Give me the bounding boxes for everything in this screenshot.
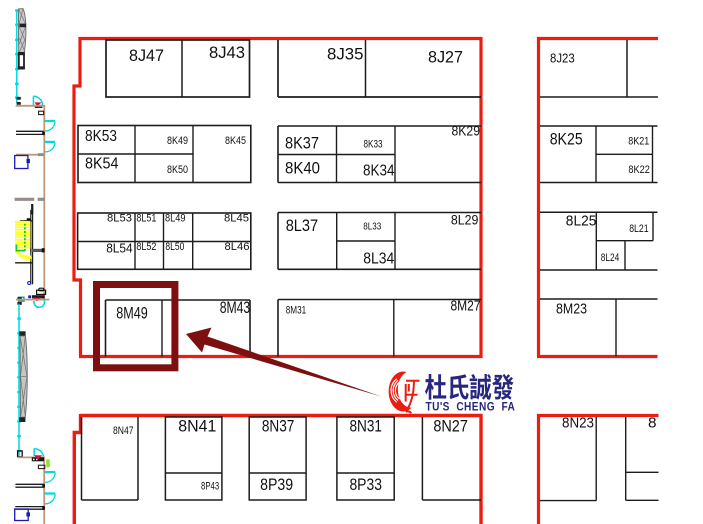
svg-text:8K50: 8K50 [167, 164, 188, 176]
svg-text:8P33: 8P33 [349, 476, 382, 494]
svg-text:8L34: 8L34 [363, 251, 394, 268]
svg-text:8J35: 8J35 [327, 45, 364, 64]
svg-text:8K22: 8K22 [628, 164, 649, 176]
svg-text:8N23: 8N23 [562, 414, 594, 431]
svg-text:8: 8 [648, 414, 657, 431]
svg-text:8L45: 8L45 [224, 213, 249, 225]
svg-text:8N47: 8N47 [113, 425, 134, 437]
svg-text:8N27: 8N27 [433, 417, 468, 435]
svg-text:8K34: 8K34 [363, 163, 395, 180]
svg-text:8J43: 8J43 [209, 43, 245, 62]
svg-text:8M43: 8M43 [220, 298, 251, 317]
svg-text:8L54: 8L54 [106, 241, 133, 255]
svg-text:8K33: 8K33 [364, 138, 383, 150]
svg-text:8L50: 8L50 [165, 241, 184, 253]
svg-text:8L49: 8L49 [165, 213, 186, 225]
svg-text:8L37: 8L37 [286, 217, 319, 235]
svg-text:8N41: 8N41 [178, 416, 216, 435]
svg-text:8M27: 8M27 [451, 297, 481, 314]
svg-text:8N37: 8N37 [262, 416, 295, 435]
svg-text:8K40: 8K40 [285, 160, 320, 178]
svg-text:8P39: 8P39 [260, 475, 293, 494]
svg-text:8K37: 8K37 [285, 135, 319, 153]
svg-text:8L52: 8L52 [136, 241, 156, 253]
svg-text:8L51: 8L51 [136, 213, 156, 225]
svg-text:8K54: 8K54 [85, 156, 119, 173]
svg-text:8L53: 8L53 [107, 212, 132, 224]
svg-text:8K49: 8K49 [167, 135, 188, 147]
svg-text:8L33: 8L33 [363, 220, 381, 232]
svg-text:8J47: 8J47 [129, 46, 164, 65]
svg-text:8M49: 8M49 [116, 303, 148, 322]
svg-text:8L46: 8L46 [225, 241, 250, 253]
svg-text:8J23: 8J23 [550, 51, 575, 66]
svg-text:8K25: 8K25 [550, 130, 583, 148]
svg-text:8K29: 8K29 [452, 122, 481, 138]
svg-text:8K53: 8K53 [85, 128, 117, 145]
svg-text:8J27: 8J27 [428, 48, 463, 67]
svg-text:8L29: 8L29 [451, 211, 479, 227]
svg-text:TU'S CHENG FA: TU'S CHENG FA [426, 401, 516, 414]
svg-text:8M31: 8M31 [286, 304, 307, 316]
svg-text:8K45: 8K45 [225, 135, 246, 147]
svg-text:8M23: 8M23 [556, 302, 587, 318]
svg-text:8N31: 8N31 [349, 417, 382, 435]
svg-text:8P43: 8P43 [201, 480, 219, 492]
svg-text:8L21: 8L21 [629, 223, 648, 235]
svg-text:8K21: 8K21 [628, 135, 649, 147]
svg-text:8L24: 8L24 [601, 252, 620, 264]
svg-text:8L25: 8L25 [566, 213, 597, 230]
